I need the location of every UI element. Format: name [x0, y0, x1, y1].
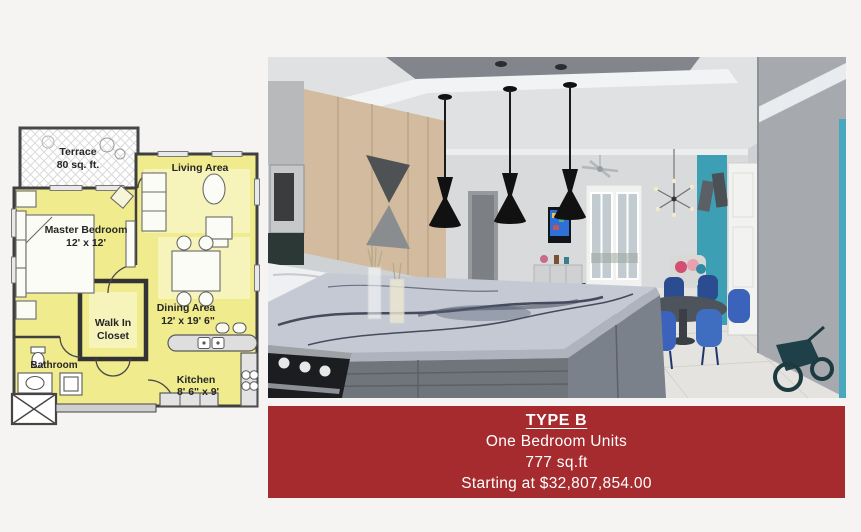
microwave	[270, 165, 304, 233]
terrace-label: Terrace	[59, 146, 96, 158]
recessed-light-icon	[555, 64, 567, 70]
unit-info-banner: TYPE B One Bedroom Units 777 sq.ft Start…	[268, 406, 845, 498]
recessed-light-icon	[495, 61, 507, 67]
hallway-opening	[468, 191, 498, 287]
interior-render	[268, 57, 846, 398]
living-area-label: Living Area	[172, 162, 229, 174]
closet-label-line1: Walk In	[95, 317, 131, 329]
french-doors	[586, 185, 642, 287]
master-bedroom-dims: 12' x 12'	[66, 237, 106, 249]
brochure-page: { "page": { "background": "#f5f4f2" }, "…	[0, 0, 861, 532]
stove	[268, 345, 352, 398]
bathroom-label: Bathroom	[30, 360, 77, 371]
unit-type-title: TYPE B	[526, 412, 587, 430]
master-bedroom-label: Master Bedroom	[45, 224, 128, 236]
kitchen-label: Kitchen	[177, 374, 216, 386]
dining-area-dims: 12' x 19' 6"	[161, 315, 215, 327]
floor-plan-drawing: Terrace 80 sq. ft. Living Area Master Be…	[8, 125, 264, 427]
closet-label-line2: Closet	[97, 330, 130, 342]
dark-cabinet	[268, 233, 304, 265]
unit-area: 777 sq.ft	[525, 454, 587, 472]
terrace-room	[20, 128, 138, 188]
unit-description: One Bedroom Units	[486, 433, 627, 451]
floor-plan: Terrace 80 sq. ft. Living Area Master Be…	[8, 125, 264, 427]
interior-render-scene	[268, 57, 846, 398]
kitchen-dims: 8' 6" x 9'	[177, 386, 219, 398]
terrace-dims: 80 sq. ft.	[57, 159, 100, 171]
dining-area-label: Dining Area	[157, 302, 216, 314]
unit-price: Starting at $32,807,854.00	[461, 475, 652, 493]
